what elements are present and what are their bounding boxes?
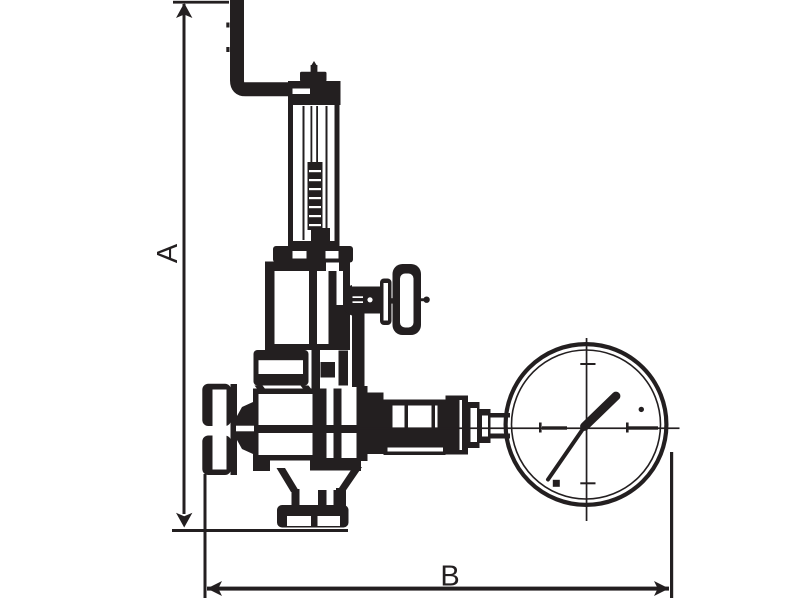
svg-text:A: A	[152, 243, 184, 263]
svg-text:B: B	[440, 561, 459, 593]
